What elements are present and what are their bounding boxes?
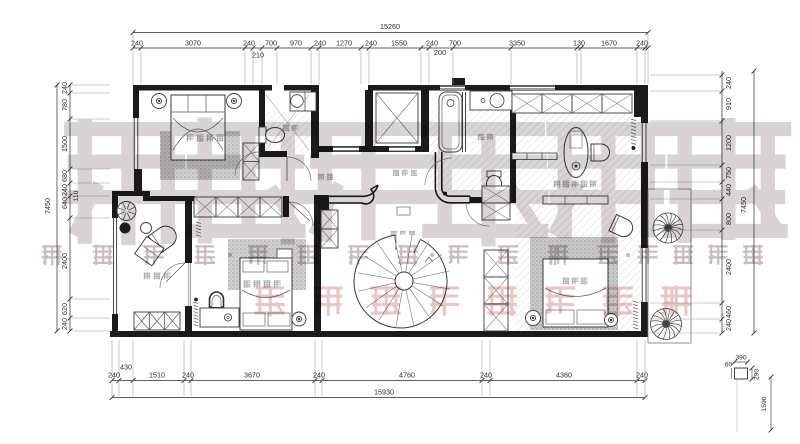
svg-text:15260: 15260	[380, 22, 400, 31]
svg-text:3070: 3070	[185, 39, 201, 48]
svg-text:460: 460	[724, 306, 733, 318]
svg-text:240: 240	[480, 371, 492, 380]
svg-text:290: 290	[754, 369, 761, 381]
svg-text:4760: 4760	[399, 371, 415, 380]
svg-text:240: 240	[313, 371, 325, 380]
svg-text:4360: 4360	[556, 371, 572, 380]
svg-text:1590: 1590	[761, 396, 768, 411]
svg-text:15930: 15930	[374, 388, 394, 397]
svg-text:240: 240	[365, 39, 377, 48]
svg-text:970: 970	[290, 39, 302, 48]
svg-text:1670: 1670	[601, 39, 617, 48]
svg-text:680: 680	[60, 170, 69, 182]
svg-text:780: 780	[60, 99, 69, 111]
svg-text:240: 240	[243, 39, 255, 48]
svg-text:210: 210	[252, 51, 264, 60]
svg-text:240: 240	[60, 318, 69, 330]
svg-text:910: 910	[724, 98, 733, 110]
svg-text:240: 240	[182, 371, 194, 380]
svg-text:240: 240	[724, 77, 733, 89]
svg-text:700: 700	[449, 39, 461, 48]
svg-text:1500: 1500	[60, 136, 69, 152]
svg-text:3670: 3670	[244, 371, 260, 380]
svg-text:390: 390	[735, 355, 747, 362]
svg-text:240: 240	[636, 371, 648, 380]
svg-text:620: 620	[60, 303, 69, 315]
svg-text:240: 240	[426, 39, 438, 48]
svg-text:1550: 1550	[391, 39, 407, 48]
svg-text:200: 200	[434, 48, 446, 57]
svg-text:3350: 3350	[509, 39, 525, 48]
svg-text:240: 240	[108, 371, 120, 380]
svg-text:240: 240	[636, 39, 648, 48]
svg-text:240: 240	[314, 39, 326, 48]
svg-text:2400: 2400	[724, 259, 733, 275]
svg-text:1270: 1270	[336, 39, 352, 48]
svg-text:240: 240	[60, 82, 69, 94]
svg-text:60: 60	[725, 362, 733, 369]
svg-text:240: 240	[724, 319, 733, 331]
svg-text:430: 430	[120, 363, 132, 372]
svg-text:2400: 2400	[60, 253, 69, 269]
svg-text:130: 130	[573, 39, 585, 48]
svg-text:700: 700	[265, 39, 277, 48]
svg-text:1510: 1510	[149, 371, 165, 380]
svg-text:7450: 7450	[43, 198, 52, 214]
